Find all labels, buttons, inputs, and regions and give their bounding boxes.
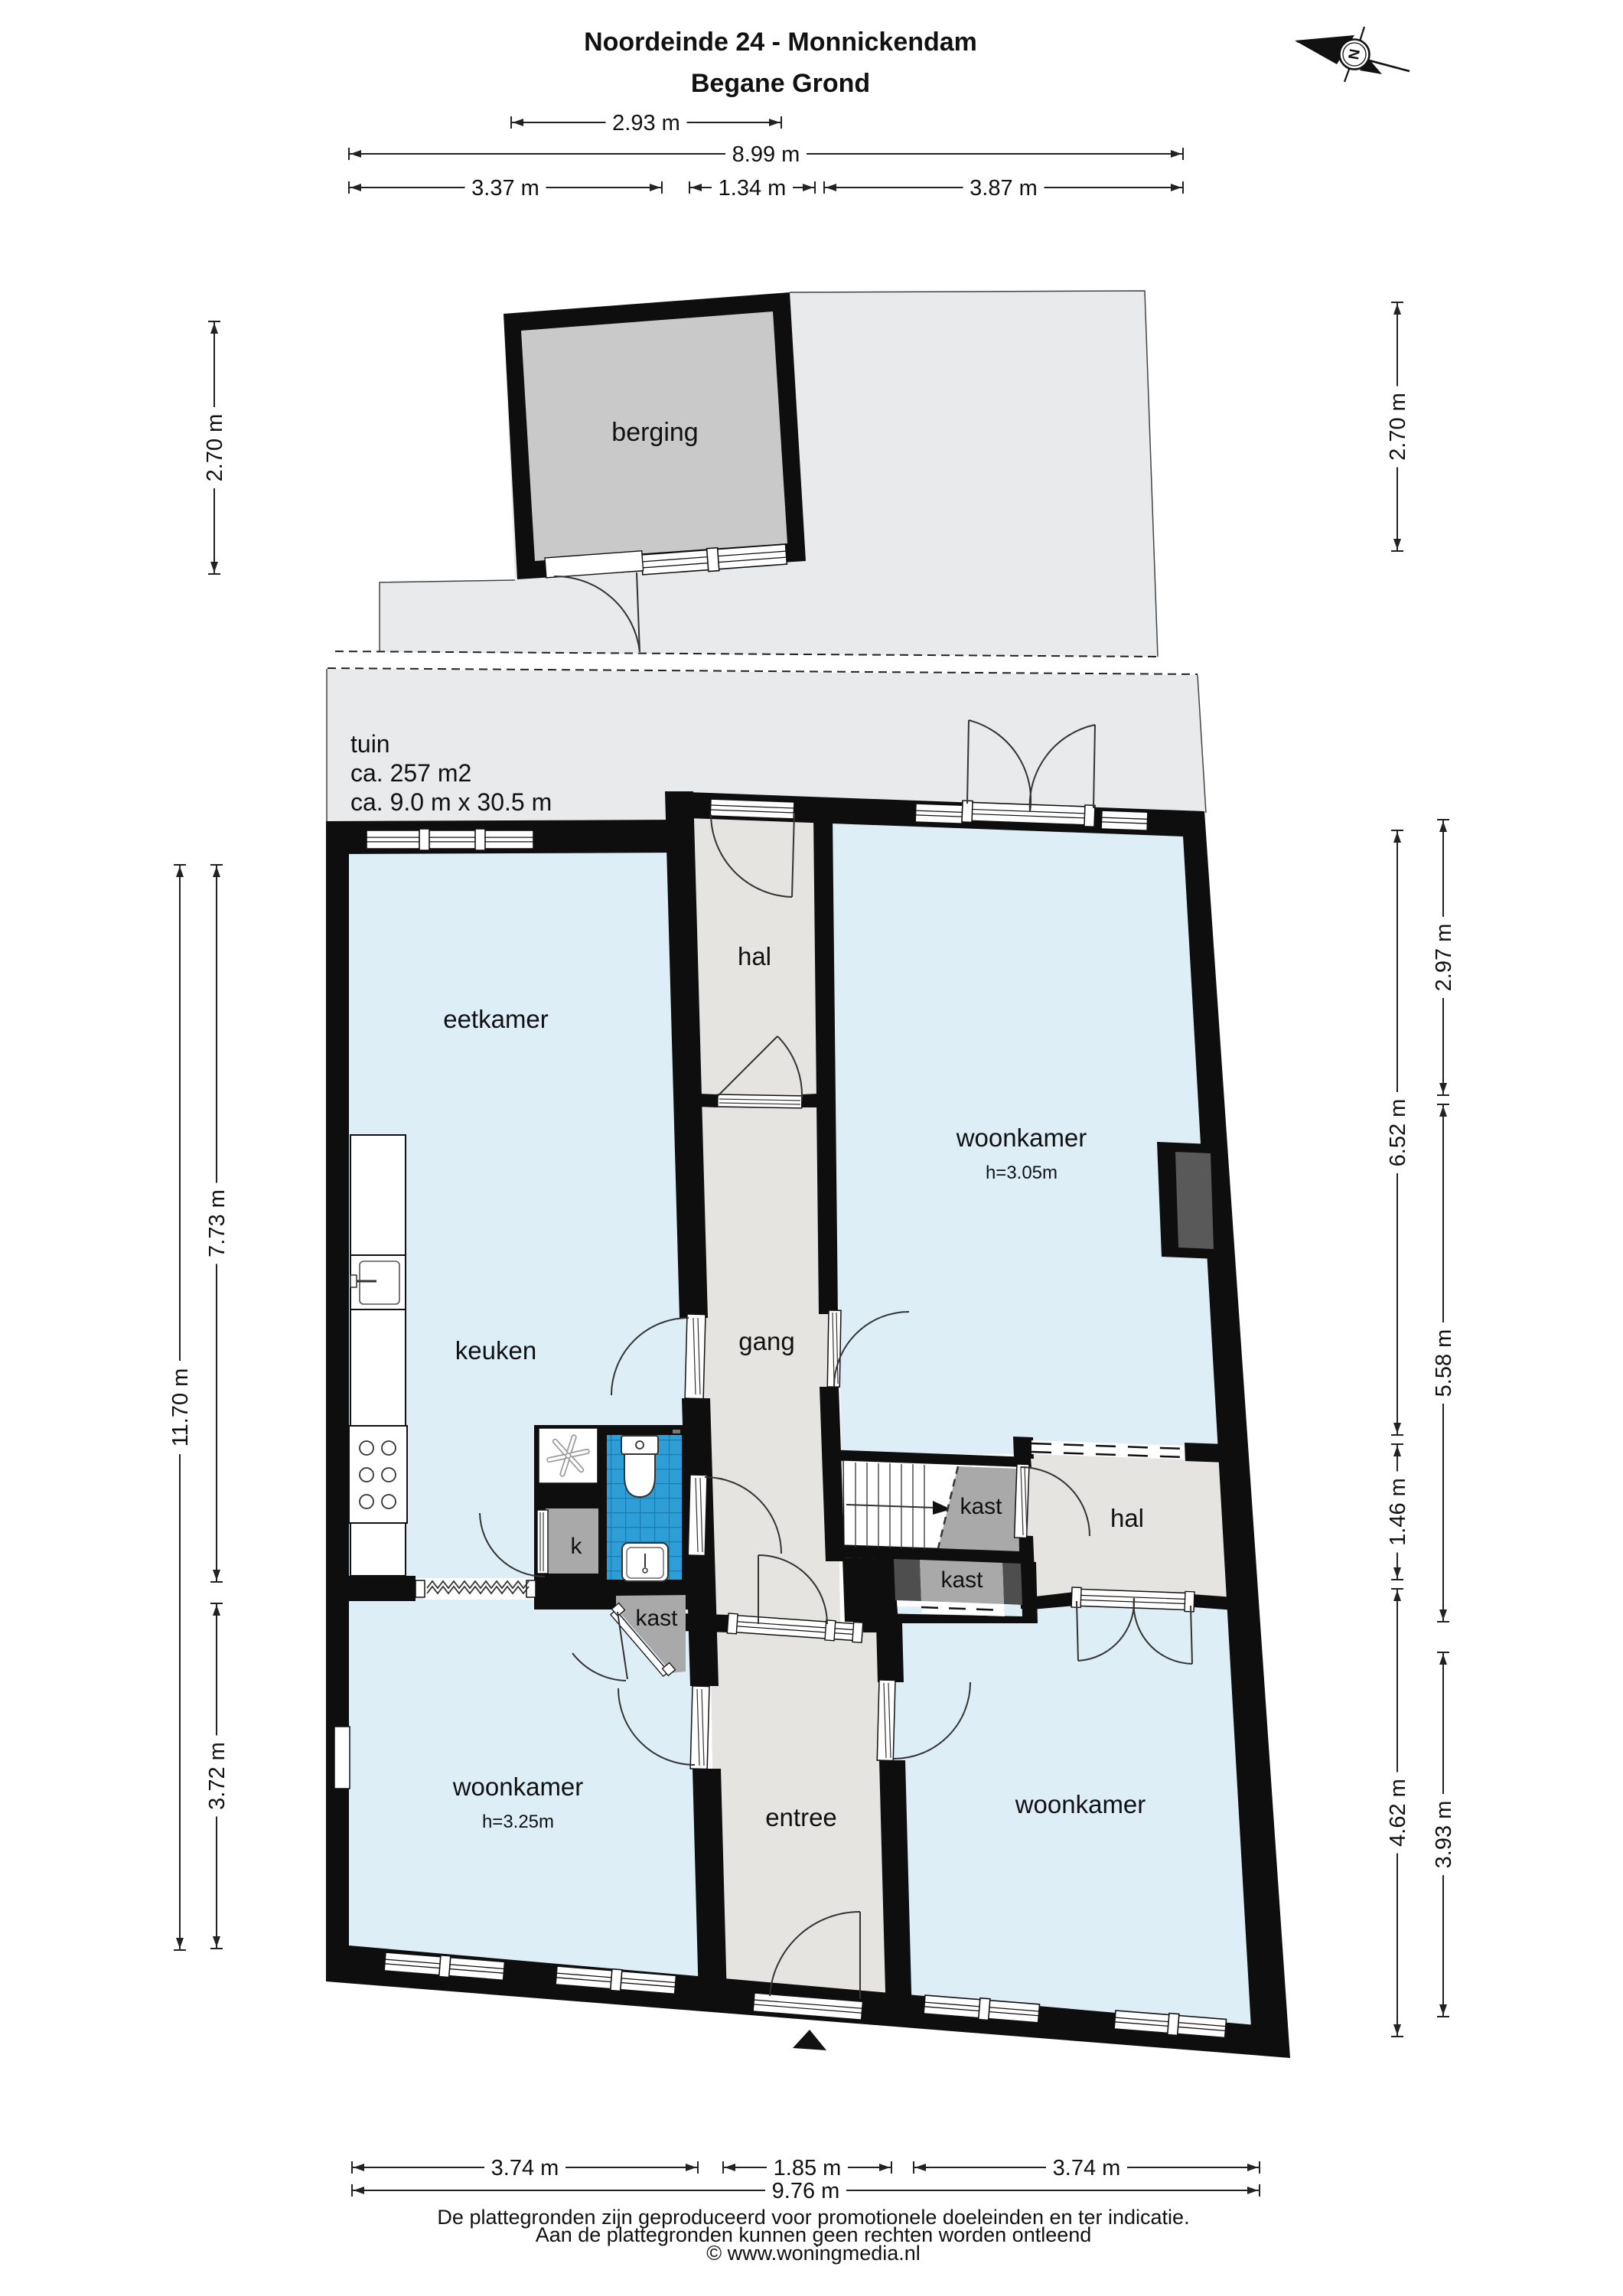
svg-text:eetkamer: eetkamer xyxy=(443,1005,549,1033)
svg-text:3.37 m: 3.37 m xyxy=(471,176,539,201)
svg-text:k: k xyxy=(571,1534,583,1559)
svg-text:Noordeinde 24 - Monnickendam: Noordeinde 24 - Monnickendam xyxy=(584,28,977,57)
svg-text:hal: hal xyxy=(1110,1504,1144,1532)
svg-text:2.70 m: 2.70 m xyxy=(1386,393,1410,461)
svg-text:gang: gang xyxy=(738,1327,794,1355)
svg-text:1.34 m: 1.34 m xyxy=(719,176,787,201)
svg-text:1.46 m: 1.46 m xyxy=(1386,1478,1410,1546)
svg-text:11.70 m: 11.70 m xyxy=(168,1368,193,1447)
svg-text:8.99 m: 8.99 m xyxy=(732,142,800,167)
svg-text:6.52 m: 6.52 m xyxy=(1386,1099,1410,1167)
svg-text:woonkamer: woonkamer xyxy=(956,1124,1087,1152)
svg-text:2.97 m: 2.97 m xyxy=(1432,924,1456,992)
svg-text:9.76 m: 9.76 m xyxy=(772,2179,840,2203)
svg-text:3.74 m: 3.74 m xyxy=(491,2156,559,2180)
svg-text:ca. 257 m2: ca. 257 m2 xyxy=(350,759,471,787)
svg-text:berging: berging xyxy=(611,418,698,447)
svg-text:h=3.05m: h=3.05m xyxy=(986,1163,1058,1183)
svg-text:4.62 m: 4.62 m xyxy=(1386,1779,1410,1847)
svg-text:3.74 m: 3.74 m xyxy=(1053,2156,1121,2180)
svg-text:2.93 m: 2.93 m xyxy=(612,111,680,135)
svg-text:entree: entree xyxy=(765,1803,837,1831)
svg-text:3.93 m: 3.93 m xyxy=(1432,1801,1456,1869)
svg-text:kast: kast xyxy=(940,1567,983,1593)
svg-text:woonkamer: woonkamer xyxy=(452,1773,584,1801)
svg-text:woonkamer: woonkamer xyxy=(1015,1790,1146,1818)
svg-text:3.72 m: 3.72 m xyxy=(205,1742,230,1810)
svg-text:tuin: tuin xyxy=(350,730,390,758)
svg-text:hal: hal xyxy=(738,942,771,970)
svg-text:© www.woningmedia.nl: © www.woningmedia.nl xyxy=(706,2242,921,2265)
svg-text:kast: kast xyxy=(635,1606,678,1631)
svg-text:keuken: keuken xyxy=(455,1336,536,1365)
svg-text:1.85 m: 1.85 m xyxy=(774,2156,842,2180)
svg-text:ca. 9.0 m x 30.5 m: ca. 9.0 m x 30.5 m xyxy=(350,788,552,816)
svg-text:h=3.25m: h=3.25m xyxy=(482,1812,554,1832)
svg-text:kast: kast xyxy=(960,1494,1002,1519)
svg-text:3.87 m: 3.87 m xyxy=(970,176,1038,201)
svg-text:5.58 m: 5.58 m xyxy=(1432,1329,1456,1397)
svg-text:Begane Grond: Begane Grond xyxy=(691,69,870,98)
svg-text:2.70 m: 2.70 m xyxy=(203,414,227,482)
svg-text:7.73 m: 7.73 m xyxy=(205,1189,230,1257)
